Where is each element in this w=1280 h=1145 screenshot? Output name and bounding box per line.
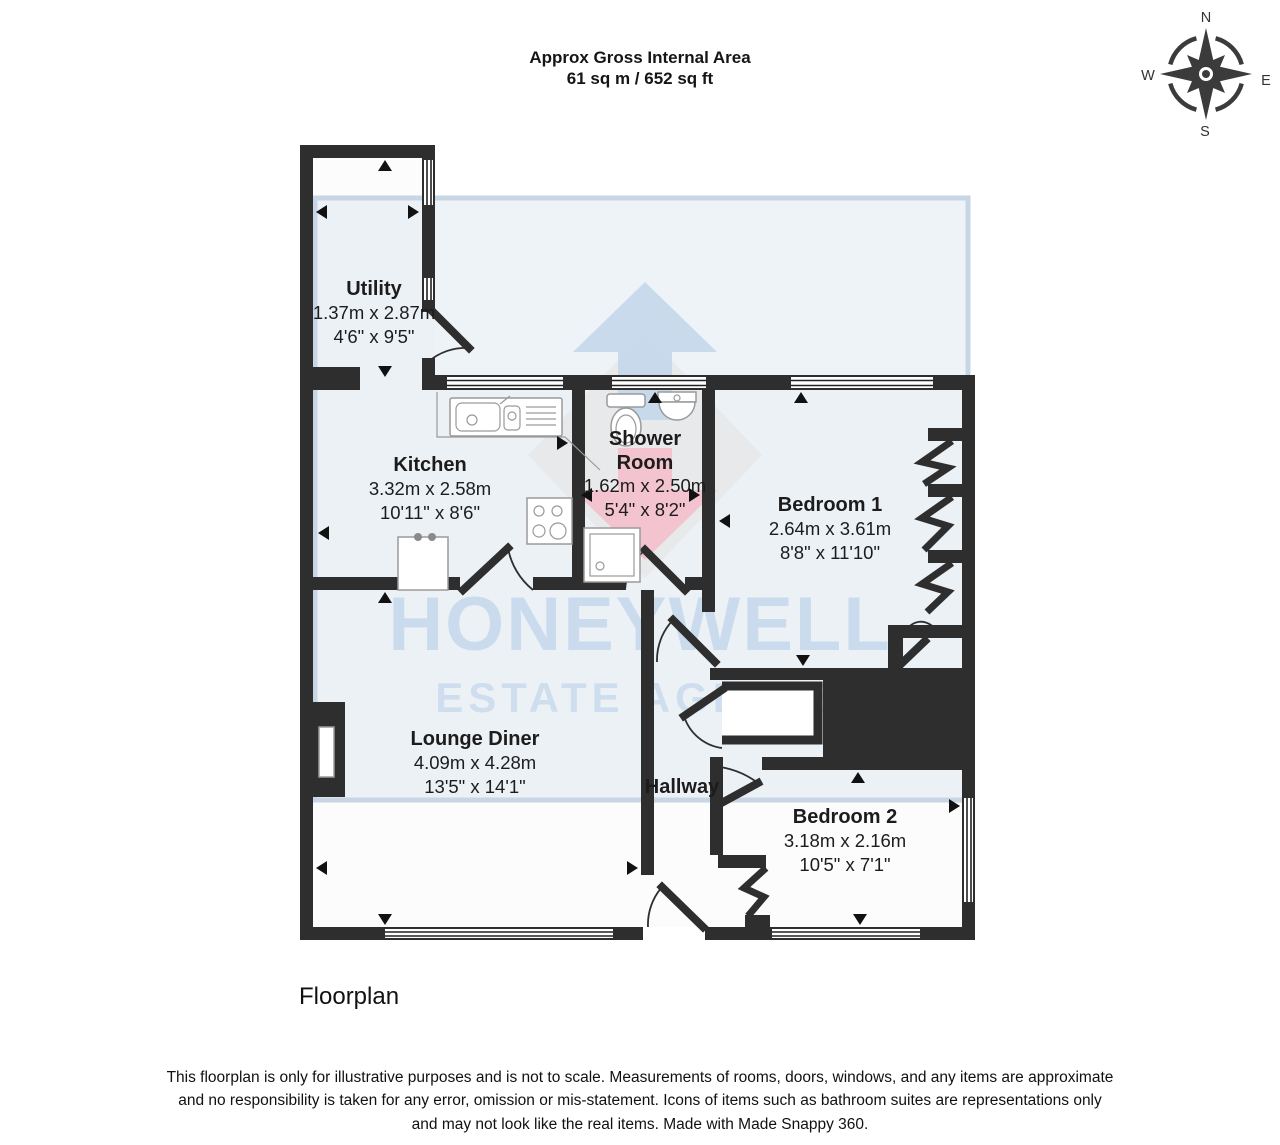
wall: [710, 668, 823, 680]
window: [791, 377, 933, 388]
room-label-lounge-diner: Lounge Diner 4.09m x 4.28m 13'5" x 14'1": [411, 728, 540, 797]
room-name: Shower: [609, 428, 681, 450]
room-imperial: 5'4" x 8'2": [605, 499, 686, 520]
room-name: Lounge Diner: [411, 728, 540, 750]
room-imperial: 10'5" x 7'1": [799, 854, 890, 875]
compass-rose: N E S W: [1141, 10, 1271, 140]
floorplan-svg: HONEYWELL ESTATE AGENTS: [0, 0, 1280, 1145]
wall: [300, 145, 435, 158]
wall: [718, 855, 766, 868]
hallway-storage-recess: [722, 686, 818, 740]
room-metric: 1.62m x 2.50m: [584, 475, 706, 496]
room-metric: 1.37m x 2.87m: [313, 302, 435, 323]
wall: [745, 915, 770, 927]
room-label-bedroom1: Bedroom 1 2.64m x 3.61m 8'8" x 11'10": [769, 494, 891, 563]
wall: [685, 577, 715, 590]
room-metric: 2.64m x 3.61m: [769, 518, 891, 539]
room-imperial: 8'8" x 11'10": [780, 542, 880, 563]
room-imperial: 10'11" x 8'6": [380, 502, 480, 523]
hob-icon: [527, 498, 572, 544]
room-name: Hallway: [645, 776, 720, 798]
room-name: Bedroom 1: [778, 494, 882, 516]
window: [424, 278, 433, 300]
compass-label-north: N: [1201, 10, 1211, 26]
room-name: Kitchen: [393, 454, 466, 476]
window: [612, 377, 706, 388]
room-label-bedroom2: Bedroom 2 3.18m x 2.16m 10'5" x 7'1": [784, 806, 906, 875]
room-name: Bedroom 2: [793, 806, 897, 828]
room-metric: 3.18m x 2.16m: [784, 830, 906, 851]
wall: [300, 145, 313, 940]
wall: [710, 757, 723, 770]
washing-machine-icon: [398, 533, 448, 590]
window: [447, 377, 563, 388]
window: [964, 798, 973, 902]
wall: [928, 428, 962, 441]
wall: [313, 367, 360, 390]
shower-tray-icon: [584, 528, 640, 582]
room-imperial: 4'6" x 9'5": [334, 326, 415, 347]
compass-hub-dot: [1202, 70, 1210, 78]
room-metric: 4.09m x 4.28m: [414, 752, 536, 773]
room-imperial: 13'5" x 14'1": [424, 776, 525, 797]
compass-label-east: E: [1261, 73, 1271, 89]
window: [772, 929, 920, 938]
window: [385, 929, 613, 938]
fireplace-icon: [313, 702, 345, 797]
wall: [928, 484, 962, 497]
window: [424, 160, 433, 205]
wall: [641, 590, 654, 875]
compass-label-west: W: [1141, 68, 1155, 84]
floorplan-caption: Floorplan: [299, 983, 399, 1011]
compass-label-south: S: [1200, 124, 1210, 140]
room-label-hallway: Hallway: [645, 776, 720, 798]
room-metric: 3.32m x 2.58m: [369, 478, 491, 499]
floorplan-page: { "header": { "title": "Approx Gross Int…: [0, 0, 1280, 1145]
disclaimer-text: This floorplan is only for illustrative …: [164, 1066, 1116, 1136]
room-name: Utility: [346, 278, 402, 300]
storage-block: [823, 668, 962, 757]
wall: [928, 550, 962, 563]
room-name: Room: [617, 452, 674, 474]
wall: [762, 757, 962, 770]
